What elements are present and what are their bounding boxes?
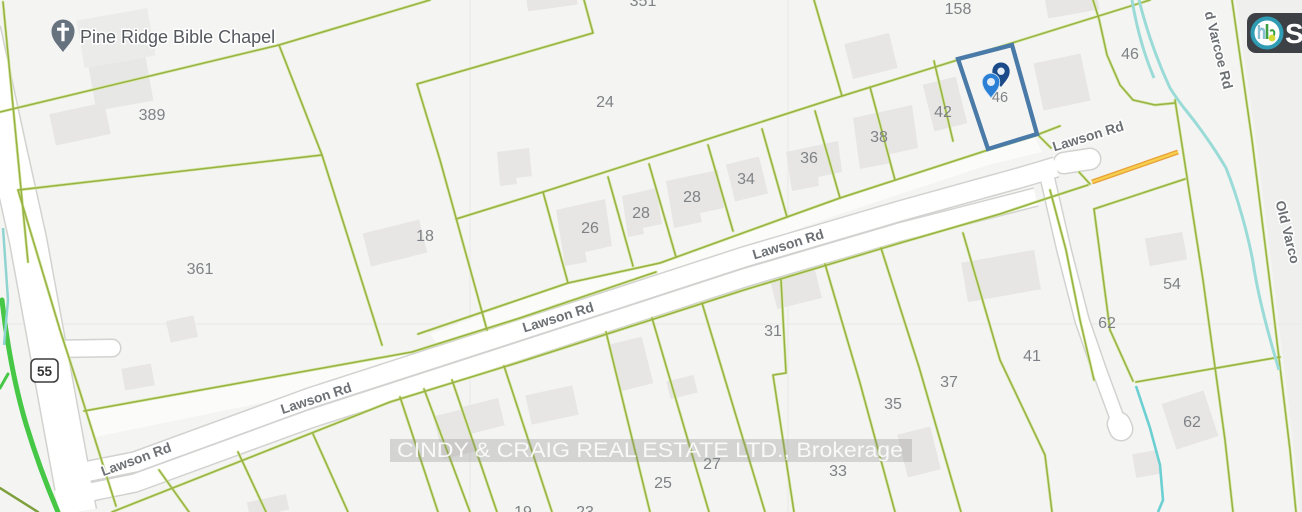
svg-text:38: 38: [870, 129, 888, 146]
svg-text:41: 41: [1023, 348, 1041, 365]
svg-text:351: 351: [630, 0, 657, 10]
svg-text:18: 18: [416, 228, 434, 245]
svg-text:CINDY & CRAIG REAL ESTATE LTD.: CINDY & CRAIG REAL ESTATE LTD., Brokerag…: [397, 439, 903, 462]
svg-text:361: 361: [187, 261, 214, 278]
svg-text:24: 24: [596, 94, 614, 111]
svg-text:54: 54: [1163, 276, 1181, 293]
svg-text:34: 34: [737, 171, 755, 188]
svg-text:33: 33: [829, 463, 847, 480]
svg-text:31: 31: [764, 323, 782, 340]
svg-text:62: 62: [1098, 315, 1116, 332]
svg-text:46: 46: [1121, 46, 1139, 63]
svg-text:55: 55: [37, 364, 53, 379]
svg-text:35: 35: [884, 396, 902, 413]
svg-text:42: 42: [934, 104, 952, 121]
svg-text:23: 23: [576, 504, 594, 512]
svg-text:19: 19: [514, 504, 532, 512]
svg-text:28: 28: [683, 189, 701, 206]
svg-text:26: 26: [581, 220, 599, 237]
svg-text:389: 389: [139, 107, 166, 124]
svg-text:158: 158: [945, 1, 972, 18]
svg-text:Pine Ridge Bible Chapel: Pine Ridge Bible Chapel: [80, 27, 275, 47]
svg-text:28: 28: [632, 205, 650, 222]
svg-text:25: 25: [654, 475, 672, 492]
svg-text:36: 36: [800, 150, 818, 167]
svg-text:Sc: Sc: [1285, 18, 1302, 49]
svg-text:37: 37: [940, 374, 958, 391]
svg-text:62: 62: [1183, 414, 1201, 431]
